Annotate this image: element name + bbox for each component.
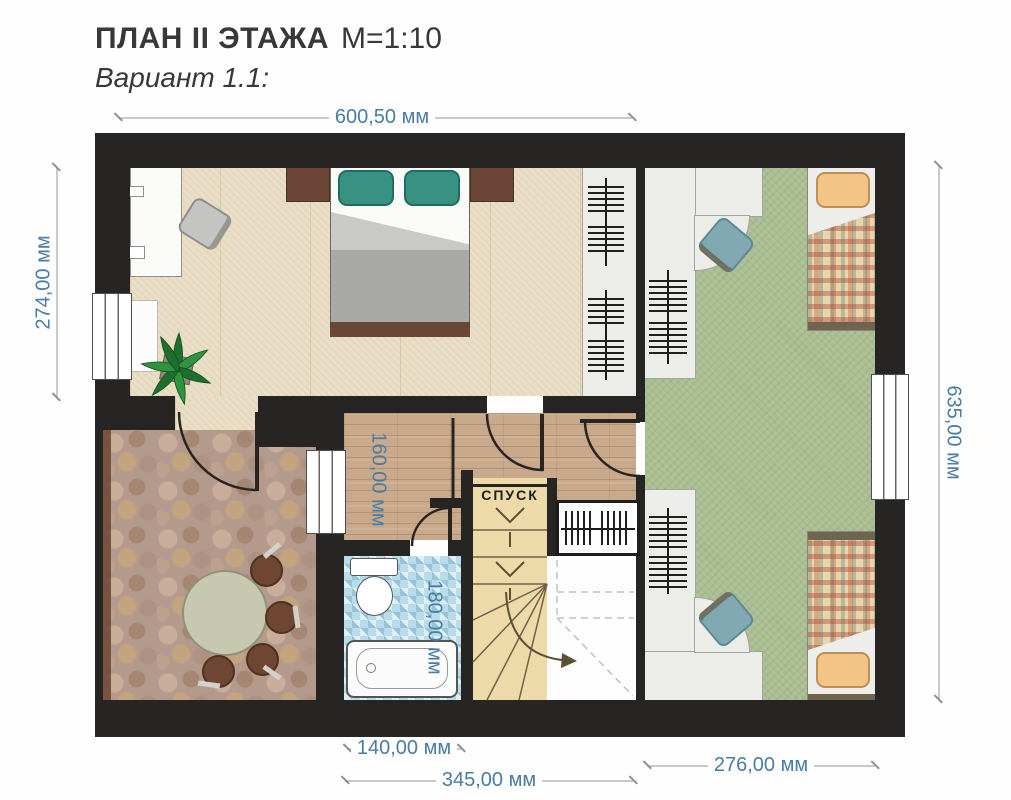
- desk-notch: [128, 246, 145, 259]
- quilt-blanket: [808, 540, 878, 650]
- wall-stairs-left: [461, 470, 473, 700]
- plan-scale: М=1:10: [341, 22, 442, 55]
- wall-left-upper: [95, 133, 130, 430]
- radiator: [586, 290, 626, 380]
- pillow: [816, 652, 870, 688]
- title-block: ПЛАН II ЭТАЖАМ=1:10 Вариант 1.1:: [95, 22, 442, 94]
- dimension-hall-width: 160,00 мм: [367, 415, 390, 545]
- dimension-left: 274,00 мм: [33, 218, 56, 348]
- wall-bedroom-dining-corner: [258, 396, 344, 447]
- dining-chair: [250, 554, 283, 587]
- wall-kids-top: [636, 133, 645, 422]
- wall-top: [95, 133, 905, 168]
- pillow: [338, 170, 394, 206]
- window-dining-hall: [306, 450, 346, 534]
- hallway-nook-floor: [344, 413, 461, 540]
- window-right: [871, 374, 909, 500]
- wall-bottom: [95, 700, 905, 737]
- pillow: [816, 172, 870, 208]
- quilt-blanket: [808, 212, 878, 322]
- radiator: [648, 270, 688, 364]
- dimension-bottom-bath: 140,00 мм: [329, 737, 479, 760]
- dim-line-right: [938, 165, 940, 700]
- pillow: [404, 170, 460, 206]
- window-left: [92, 293, 132, 380]
- radiator: [648, 508, 688, 594]
- toilet-bowl: [356, 576, 393, 616]
- toilet-tank: [350, 558, 398, 576]
- stairs: [473, 478, 547, 700]
- dimension-top: 600,50 мм: [262, 106, 502, 129]
- bathtub-drain: [366, 663, 376, 673]
- wall-nook-stub: [430, 498, 461, 508]
- single-bed-top: [808, 160, 878, 330]
- dimension-bath-width: 180,00 мм: [423, 563, 446, 693]
- bed-footboard: [330, 322, 470, 337]
- dimension-right: 635,00 мм: [942, 368, 965, 498]
- wall-bedroom-hall-right: [543, 396, 637, 413]
- desk-notch: [128, 186, 144, 197]
- dimension-bottom-center: 345,00 мм: [414, 769, 564, 792]
- floor-plan-page: ПЛАН II ЭТАЖАМ=1:10 Вариант 1.1:: [0, 0, 1011, 800]
- window-sill: [130, 300, 158, 372]
- plan-variant: Вариант 1.1:: [95, 62, 442, 94]
- stair-void: [557, 556, 636, 700]
- wall-bedroom-hall-left: [344, 396, 487, 413]
- single-bed-bottom: [808, 532, 878, 702]
- wall-left-lower: [95, 430, 103, 737]
- bed-blanket: [331, 250, 469, 322]
- dining-wall-shelf: [103, 430, 111, 700]
- stairs-label: СПУСК: [473, 487, 547, 503]
- dimension-bottom-right: 276,00 мм: [686, 754, 836, 777]
- plan-title: ПЛАН II ЭТАЖА: [95, 22, 329, 55]
- desk: [130, 167, 182, 277]
- wall-bedroom-dining-left: [95, 396, 175, 430]
- radiator-box: [556, 500, 640, 556]
- kids-desk-bottom: [645, 652, 762, 700]
- bedroom-door-threshold: [175, 396, 258, 430]
- page-title: ПЛАН II ЭТАЖАМ=1:10: [95, 22, 442, 56]
- dim-line-left: [56, 167, 58, 398]
- radiator: [586, 178, 626, 266]
